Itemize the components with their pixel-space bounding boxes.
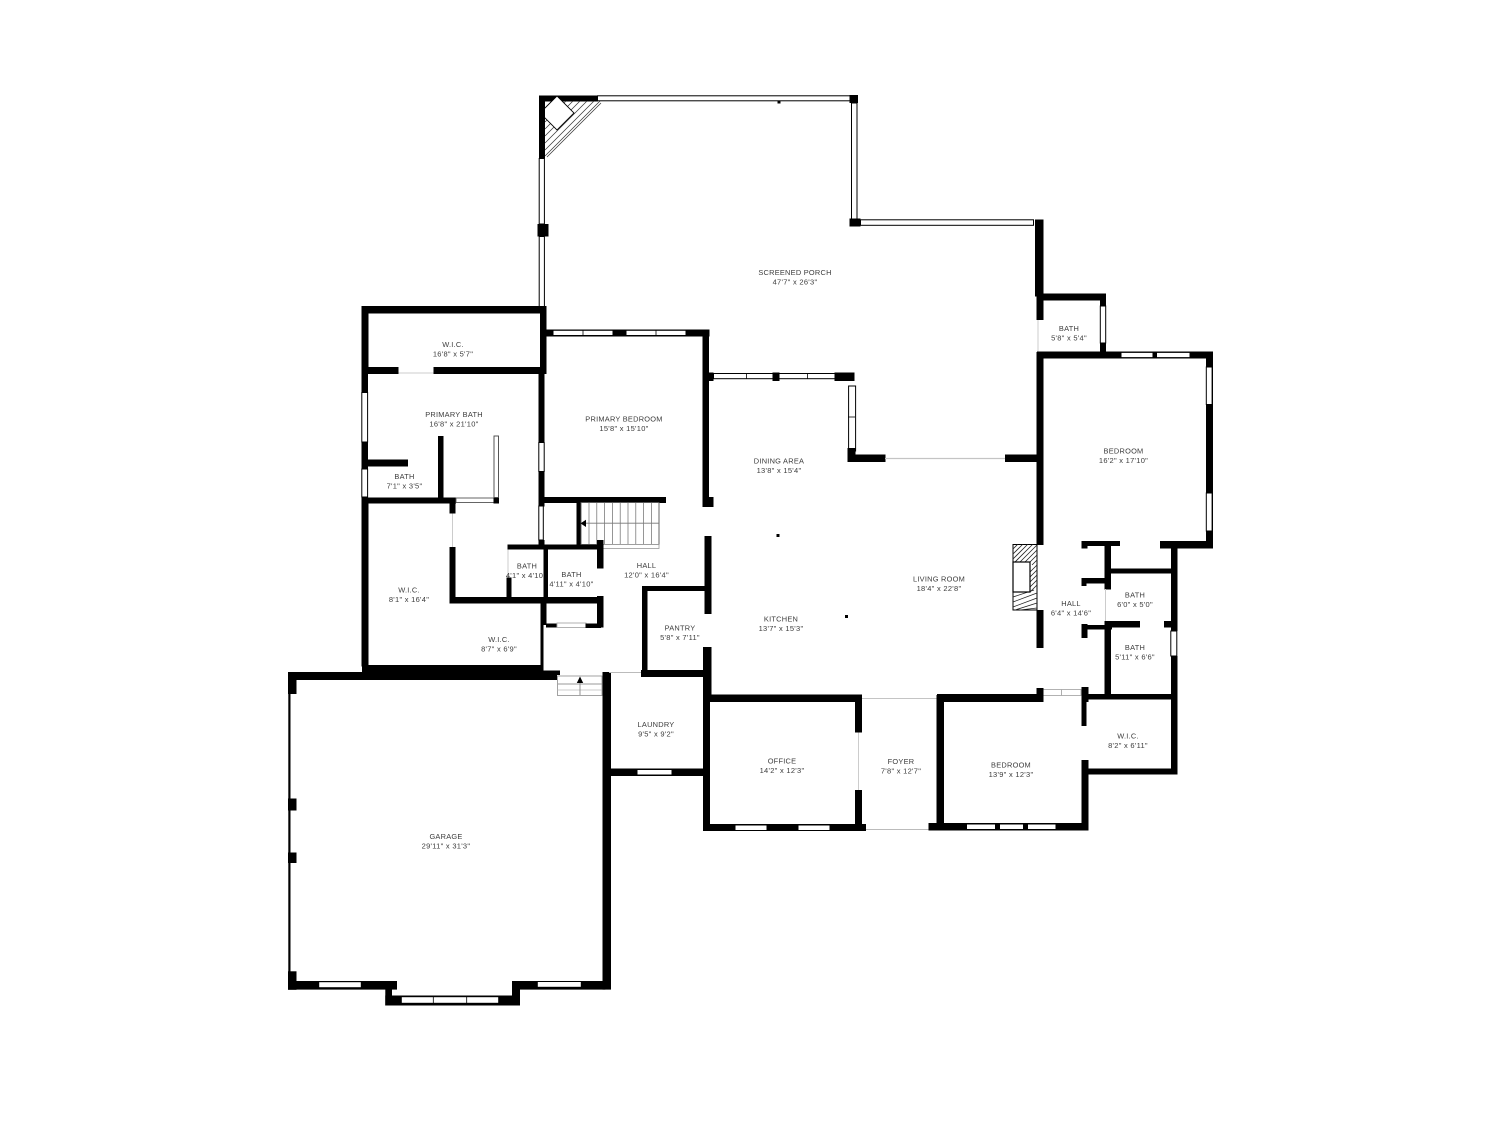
svg-text:LIVING ROOM: LIVING ROOM <box>913 575 965 584</box>
svg-text:7'1" x 3'5": 7'1" x 3'5" <box>387 482 423 491</box>
svg-text:OFFICE: OFFICE <box>768 757 797 766</box>
svg-text:6'0" x 5'0": 6'0" x 5'0" <box>1117 600 1153 609</box>
svg-text:15'8" x 15'10": 15'8" x 15'10" <box>599 424 648 433</box>
svg-text:PRIMARY BEDROOM: PRIMARY BEDROOM <box>585 415 662 424</box>
svg-text:13'7" x 15'3": 13'7" x 15'3" <box>759 624 804 633</box>
svg-text:W.I.C.: W.I.C. <box>1117 732 1139 741</box>
svg-text:FOYER: FOYER <box>888 757 915 766</box>
svg-text:14'2" x 12'3": 14'2" x 12'3" <box>760 766 805 775</box>
svg-text:GARAGE: GARAGE <box>429 832 462 841</box>
svg-text:BEDROOM: BEDROOM <box>991 761 1031 770</box>
svg-text:W.I.C.: W.I.C. <box>488 635 510 644</box>
svg-text:5'8" x 5'4": 5'8" x 5'4" <box>1051 334 1087 343</box>
svg-text:HALL: HALL <box>637 561 657 570</box>
svg-text:7'8" x 12'7": 7'8" x 12'7" <box>881 767 921 776</box>
svg-text:8'1" x 16'4": 8'1" x 16'4" <box>389 595 429 604</box>
svg-text:16'2" x 17'10": 16'2" x 17'10" <box>1099 456 1148 465</box>
svg-text:47'7" x 26'3": 47'7" x 26'3" <box>773 278 818 287</box>
svg-text:16'8" x 5'7": 16'8" x 5'7" <box>433 350 473 359</box>
svg-text:9'5" x 9'2": 9'5" x 9'2" <box>638 730 674 739</box>
svg-text:18'4" x 22'8": 18'4" x 22'8" <box>917 584 962 593</box>
svg-text:PANTRY: PANTRY <box>665 624 696 633</box>
svg-text:BATH: BATH <box>1125 591 1145 600</box>
svg-text:BATH: BATH <box>1125 643 1145 652</box>
svg-text:16'8" x 21'10": 16'8" x 21'10" <box>429 420 478 429</box>
svg-text:13'8" x 15'4": 13'8" x 15'4" <box>757 466 802 475</box>
svg-text:PRIMARY BATH: PRIMARY BATH <box>425 410 483 419</box>
svg-text:W.I.C.: W.I.C. <box>398 586 420 595</box>
svg-text:13'9" x 12'3": 13'9" x 12'3" <box>989 770 1034 779</box>
svg-text:6'4" x 14'6": 6'4" x 14'6" <box>1051 609 1091 618</box>
svg-text:BATH: BATH <box>1059 324 1079 333</box>
svg-text:BATH: BATH <box>561 570 581 579</box>
svg-text:DINING AREA: DINING AREA <box>754 457 804 466</box>
svg-text:HALL: HALL <box>1061 599 1081 608</box>
svg-text:BATH: BATH <box>394 472 414 481</box>
svg-text:SCREENED PORCH: SCREENED PORCH <box>758 268 831 277</box>
svg-text:29'11" x 31'3": 29'11" x 31'3" <box>422 842 471 851</box>
svg-text:5'11" x 6'6": 5'11" x 6'6" <box>1115 653 1155 662</box>
svg-text:12'0" x 16'4": 12'0" x 16'4" <box>624 571 669 580</box>
svg-text:4'1" x 4'10": 4'1" x 4'10" <box>506 571 546 580</box>
svg-text:W.I.C.: W.I.C. <box>442 340 464 349</box>
svg-text:4'11" x 4'10": 4'11" x 4'10" <box>549 580 593 589</box>
svg-text:BEDROOM: BEDROOM <box>1104 447 1144 456</box>
svg-text:BATH: BATH <box>517 562 537 571</box>
svg-text:8'7" x 6'9": 8'7" x 6'9" <box>481 645 517 654</box>
svg-text:8'2" x 6'11": 8'2" x 6'11" <box>1108 741 1148 750</box>
svg-text:LAUNDRY: LAUNDRY <box>638 720 675 729</box>
svg-text:KITCHEN: KITCHEN <box>764 615 798 624</box>
svg-text:5'8" x 7'11": 5'8" x 7'11" <box>660 633 700 642</box>
